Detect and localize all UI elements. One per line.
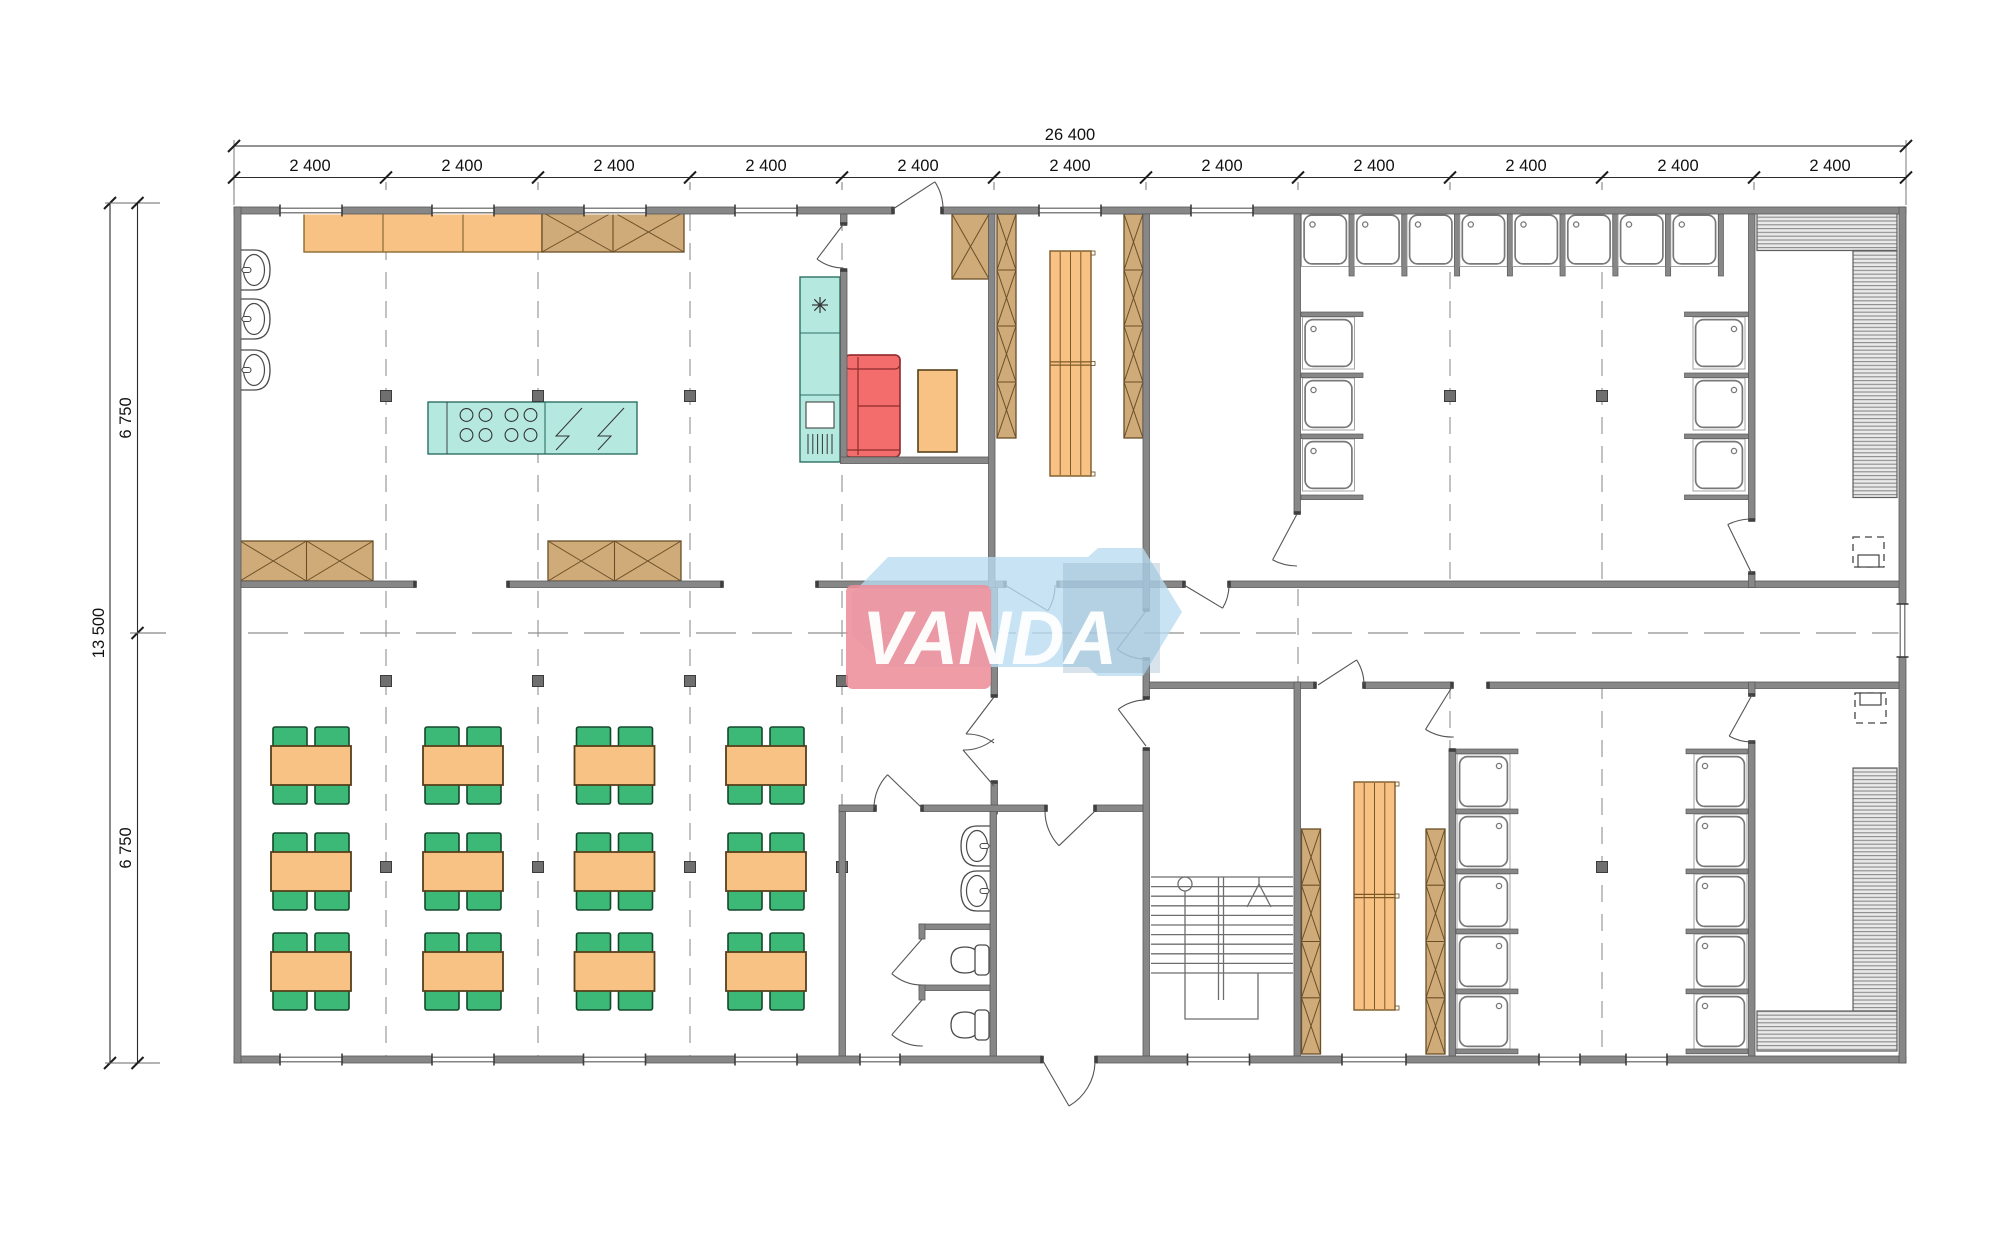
svg-text:2 400: 2 400	[897, 157, 938, 175]
svg-text:2 400: 2 400	[745, 157, 786, 175]
svg-text:26 400: 26 400	[1045, 126, 1095, 144]
svg-text:2 400: 2 400	[1201, 157, 1242, 175]
svg-text:2 400: 2 400	[593, 157, 634, 175]
svg-text:6 750: 6 750	[117, 397, 135, 438]
svg-text:2 400: 2 400	[1657, 157, 1698, 175]
svg-text:2 400: 2 400	[1353, 157, 1394, 175]
svg-text:2 400: 2 400	[441, 157, 482, 175]
svg-text:6 750: 6 750	[117, 827, 135, 868]
svg-text:13 500: 13 500	[90, 608, 108, 658]
svg-text:2 400: 2 400	[1505, 157, 1546, 175]
svg-text:2 400: 2 400	[1049, 157, 1090, 175]
svg-text:2 400: 2 400	[1809, 157, 1850, 175]
svg-text:VANDA: VANDA	[862, 596, 1117, 681]
svg-text:2 400: 2 400	[289, 157, 330, 175]
